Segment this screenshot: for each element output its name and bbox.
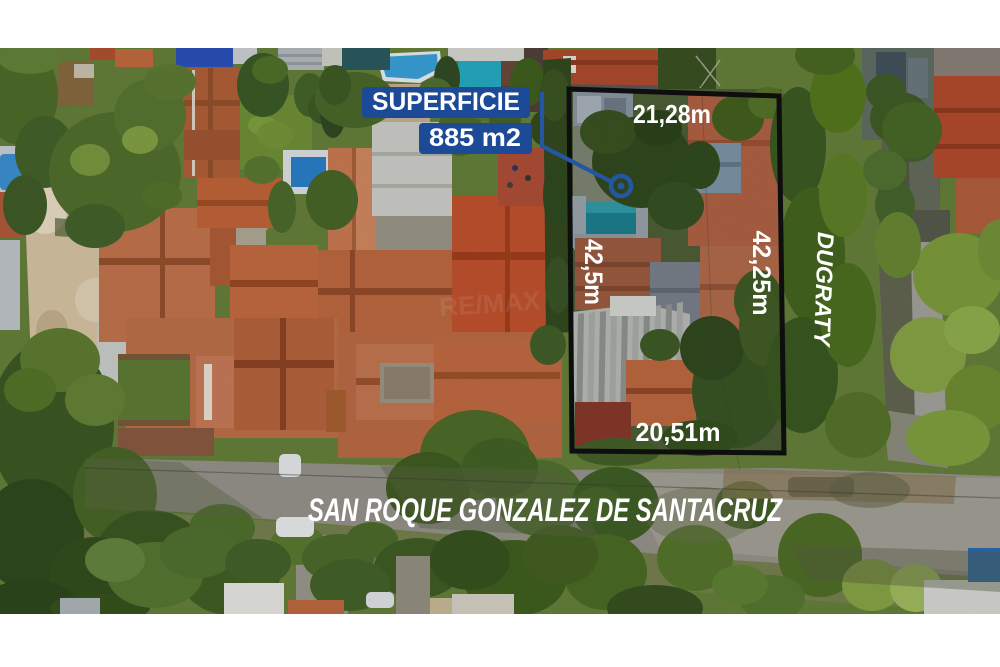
svg-text:42,25m: 42,25m bbox=[747, 231, 775, 316]
svg-text:SAN ROQUE GONZALEZ DE SANTACRU: SAN ROQUE GONZALEZ DE SANTACRUZ bbox=[308, 492, 783, 528]
svg-text:SUPERFICIE: SUPERFICIE bbox=[372, 88, 520, 116]
svg-text:885 m2: 885 m2 bbox=[429, 124, 521, 152]
svg-text:42,5m: 42,5m bbox=[579, 239, 607, 305]
svg-text:20,51m: 20,51m bbox=[636, 417, 721, 447]
svg-text:21,28m: 21,28m bbox=[633, 99, 711, 129]
svg-text:DUGRATY: DUGRATY bbox=[809, 232, 839, 350]
